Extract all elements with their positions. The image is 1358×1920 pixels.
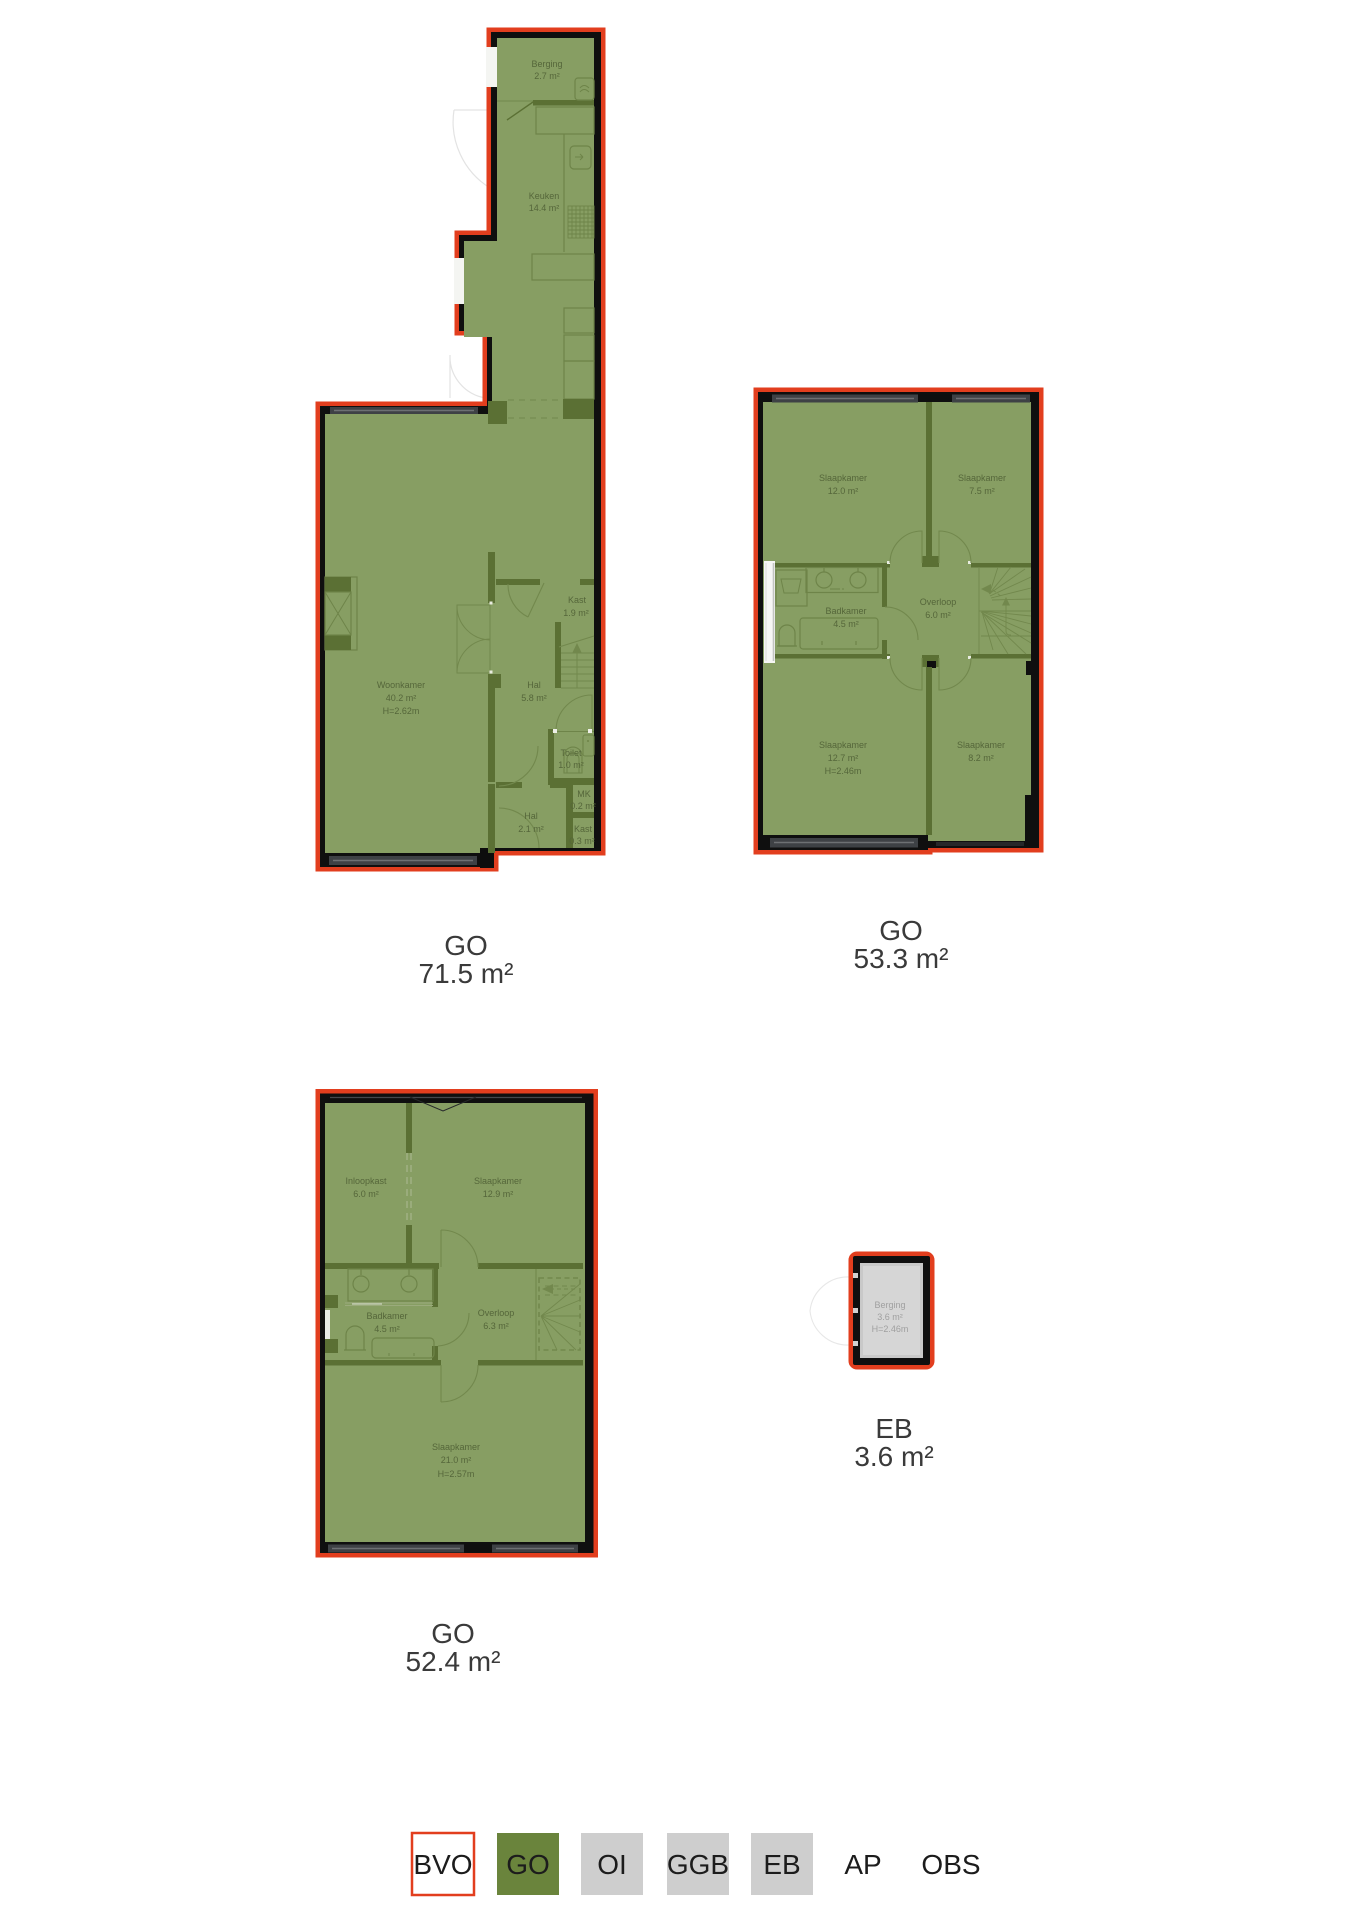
svg-text:6.3 m²: 6.3 m² [483, 1321, 509, 1331]
svg-text:Badkamer: Badkamer [825, 606, 866, 616]
svg-text:Slaapkamer: Slaapkamer [957, 740, 1005, 750]
svg-text:Slaapkamer: Slaapkamer [474, 1176, 522, 1186]
svg-text:0.3 m²: 0.3 m² [569, 836, 595, 846]
svg-text:Hal: Hal [524, 811, 538, 821]
svg-text:EB: EB [875, 1413, 912, 1444]
svg-text:0.2 m²: 0.2 m² [570, 801, 596, 811]
svg-text:GO: GO [506, 1849, 550, 1880]
svg-text:5.8 m²: 5.8 m² [521, 693, 547, 703]
svg-text:Slaapkamer: Slaapkamer [432, 1442, 480, 1452]
svg-text:Kast: Kast [574, 824, 593, 834]
svg-text:Toilet: Toilet [560, 748, 582, 758]
svg-text:6.0 m²: 6.0 m² [925, 610, 951, 620]
svg-text:7.5 m²: 7.5 m² [969, 486, 995, 496]
svg-text:MK: MK [577, 789, 591, 799]
svg-text:40.2 m²: 40.2 m² [386, 693, 417, 703]
svg-text:Hal: Hal [527, 680, 541, 690]
svg-text:2.7 m²: 2.7 m² [534, 71, 560, 81]
svg-text:3.6 m²: 3.6 m² [854, 1441, 933, 1472]
svg-text:71.5 m²: 71.5 m² [419, 958, 514, 989]
svg-text:Slaapkamer: Slaapkamer [819, 740, 867, 750]
svg-text:GGB: GGB [667, 1849, 729, 1880]
svg-text:4.5 m²: 4.5 m² [833, 619, 859, 629]
svg-text:GO: GO [431, 1618, 475, 1649]
svg-text:GO: GO [444, 930, 488, 961]
svg-text:21.0 m²: 21.0 m² [441, 1455, 472, 1465]
svg-text:Keuken: Keuken [529, 191, 560, 201]
svg-text:GO: GO [879, 915, 923, 946]
svg-text:Berging: Berging [874, 1300, 905, 1310]
svg-text:BVO: BVO [413, 1849, 472, 1880]
svg-text:12.0 m²: 12.0 m² [828, 486, 859, 496]
svg-text:H=2.57m: H=2.57m [438, 1469, 475, 1479]
svg-text:Inloopkast: Inloopkast [345, 1176, 387, 1186]
svg-text:H=2.62m: H=2.62m [383, 706, 420, 716]
svg-text:Badkamer: Badkamer [366, 1311, 407, 1321]
svg-text:Kast: Kast [568, 595, 587, 605]
svg-text:H=2.46m: H=2.46m [825, 766, 862, 776]
svg-text:Berging: Berging [531, 59, 562, 69]
svg-text:1.9 m²: 1.9 m² [563, 608, 589, 618]
svg-text:Woonkamer: Woonkamer [377, 680, 425, 690]
svg-text:6.0 m²: 6.0 m² [353, 1189, 379, 1199]
svg-text:3.6 m²: 3.6 m² [877, 1312, 903, 1322]
svg-text:1.0 m²: 1.0 m² [558, 760, 584, 770]
svg-text:Overloop: Overloop [920, 597, 957, 607]
svg-text:4.5 m²: 4.5 m² [374, 1324, 400, 1334]
svg-text:H=2.46m: H=2.46m [872, 1324, 909, 1334]
svg-text:Overloop: Overloop [478, 1308, 515, 1318]
svg-text:OI: OI [597, 1849, 627, 1880]
svg-text:Slaapkamer: Slaapkamer [958, 473, 1006, 483]
svg-text:OBS: OBS [921, 1849, 980, 1880]
svg-text:AP: AP [844, 1849, 881, 1880]
svg-text:53.3 m²: 53.3 m² [854, 943, 949, 974]
svg-text:12.7 m²: 12.7 m² [828, 753, 859, 763]
svg-text:14.4 m²: 14.4 m² [529, 203, 560, 213]
svg-text:12.9 m²: 12.9 m² [483, 1189, 514, 1199]
svg-text:EB: EB [763, 1849, 800, 1880]
svg-text:8.2 m²: 8.2 m² [968, 753, 994, 763]
svg-text:52.4 m²: 52.4 m² [406, 1646, 501, 1677]
svg-text:2.1 m²: 2.1 m² [518, 824, 544, 834]
svg-text:Slaapkamer: Slaapkamer [819, 473, 867, 483]
